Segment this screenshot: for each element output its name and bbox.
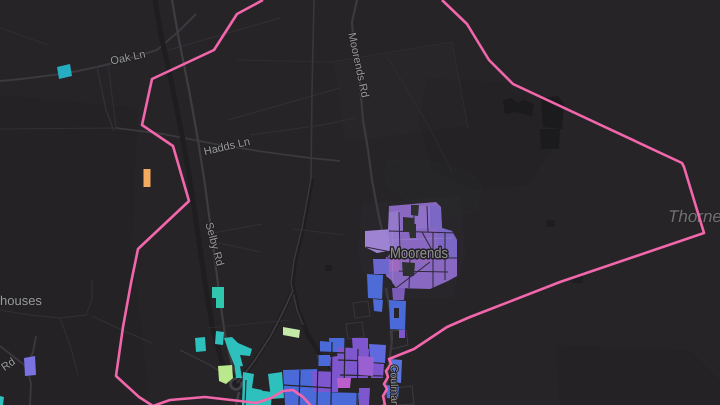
svg-text:Coulman Rd: Coulman Rd	[387, 365, 400, 405]
svg-text:Thorne M: Thorne M	[668, 207, 720, 226]
svg-text:houses: houses	[0, 293, 42, 308]
svg-text:Moorends: Moorends	[390, 245, 448, 262]
